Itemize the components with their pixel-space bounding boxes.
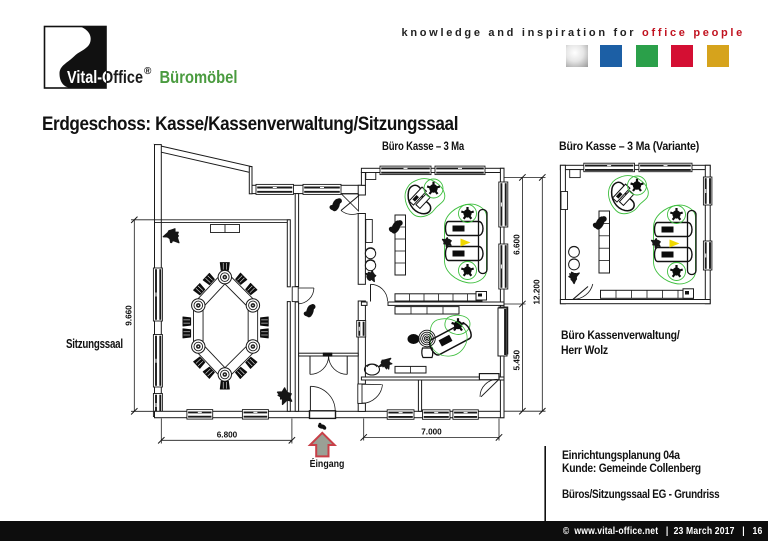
svg-text:5.450: 5.450 — [512, 350, 521, 371]
svg-text:9.660: 9.660 — [124, 305, 133, 326]
svg-text:6.600: 6.600 — [512, 234, 521, 255]
svg-text:6.800: 6.800 — [217, 430, 238, 439]
svg-text:7.000: 7.000 — [421, 427, 442, 436]
svg-text:12.200: 12.200 — [532, 279, 541, 304]
